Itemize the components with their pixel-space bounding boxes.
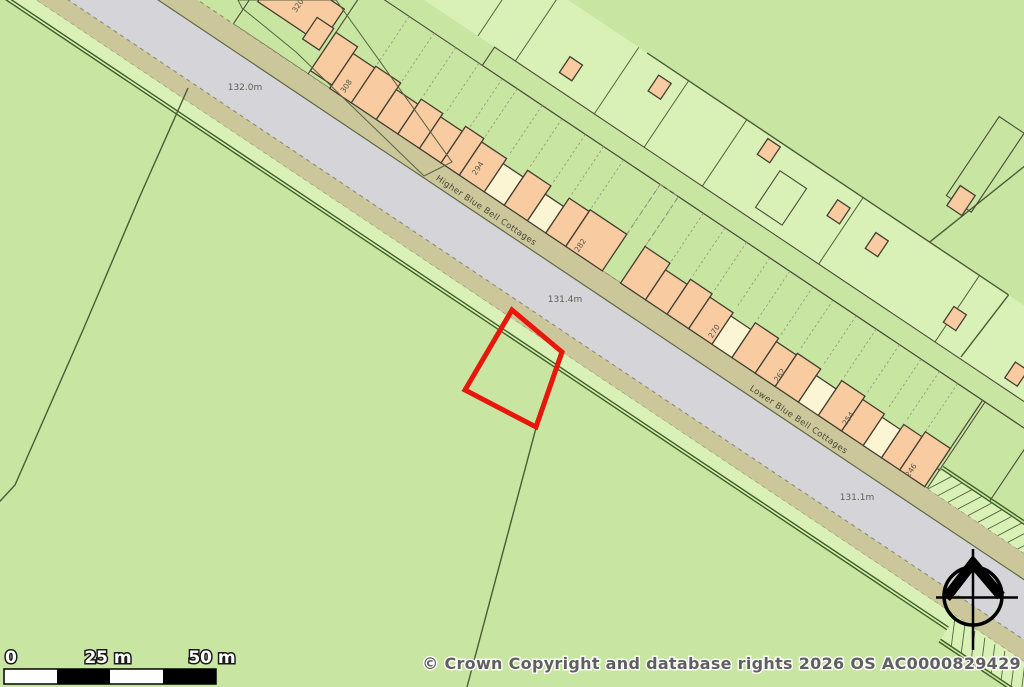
spot-height: 132.0m	[228, 83, 263, 93]
scale-label-0: 0	[5, 648, 17, 668]
copyright-notice: © Crown Copyright and database rights 20…	[422, 654, 1021, 673]
spot-height: 131.1m	[840, 493, 875, 503]
map-canvas: Higher Blue Bell Cottages Lower Blue Bel…	[0, 0, 1024, 687]
scale-label-25: 25 m	[84, 648, 131, 668]
spot-height: 131.4m	[548, 295, 583, 305]
scale-bar-segment	[57, 669, 110, 684]
field-background	[0, 0, 1024, 687]
map-viewport: Higher Blue Bell Cottages Lower Blue Bel…	[0, 0, 1024, 687]
scale-bar-segment	[163, 669, 216, 684]
scale-label-50: 50 m	[188, 648, 235, 668]
